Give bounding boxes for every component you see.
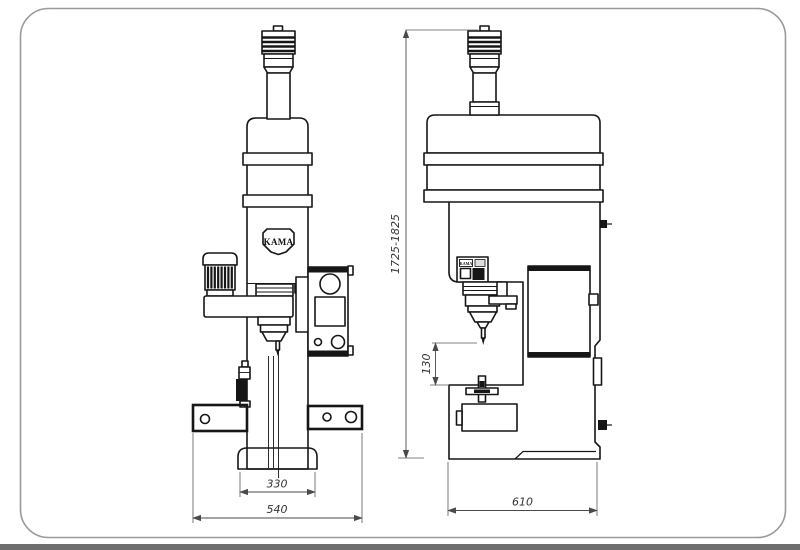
front-motor bbox=[203, 253, 237, 296]
control-button-black bbox=[473, 268, 485, 280]
dimension-side-depth: 610 bbox=[448, 462, 597, 516]
kama-logo-text: KAMA bbox=[264, 237, 294, 247]
technical-drawing-sheet: KAMA bbox=[0, 0, 800, 550]
dim-text-540: 540 bbox=[267, 503, 288, 516]
front-view: KAMA bbox=[193, 26, 362, 523]
front-left-bracket bbox=[193, 405, 247, 431]
door-latch bbox=[589, 294, 598, 305]
side-top-cap bbox=[468, 26, 501, 115]
side-lower-box bbox=[457, 404, 518, 431]
side-knob-bottom bbox=[598, 420, 607, 430]
side-knob-top bbox=[600, 220, 607, 228]
panel-button-small bbox=[315, 339, 322, 346]
dimension-front-base-width: 330 bbox=[240, 472, 315, 497]
dimension-side-throat-height: 130 bbox=[420, 343, 477, 385]
footer-bar bbox=[0, 544, 800, 550]
dim-text-1725-1825: 1725-1825 bbox=[389, 214, 402, 274]
front-right-bracket bbox=[308, 406, 362, 429]
side-chuck bbox=[463, 282, 502, 345]
control-button-outline bbox=[461, 269, 471, 279]
panel-button-large bbox=[332, 336, 345, 349]
front-arm bbox=[204, 296, 293, 317]
dim-text-130: 130 bbox=[420, 354, 433, 375]
dim-text-610: 610 bbox=[512, 496, 533, 509]
panel-window bbox=[315, 297, 345, 326]
side-view: KAMA bbox=[389, 26, 612, 516]
side-head bbox=[424, 115, 603, 202]
side-door-panel bbox=[528, 266, 598, 357]
panel-round-dial bbox=[320, 274, 340, 294]
machine-drawing-svg: KAMA bbox=[0, 0, 800, 550]
control-box-logo-text: KAMA bbox=[460, 261, 473, 266]
side-hinge-strip bbox=[594, 358, 602, 385]
side-control-box: KAMA bbox=[457, 257, 488, 282]
dim-text-330: 330 bbox=[267, 478, 288, 491]
front-top-cap bbox=[262, 26, 295, 119]
